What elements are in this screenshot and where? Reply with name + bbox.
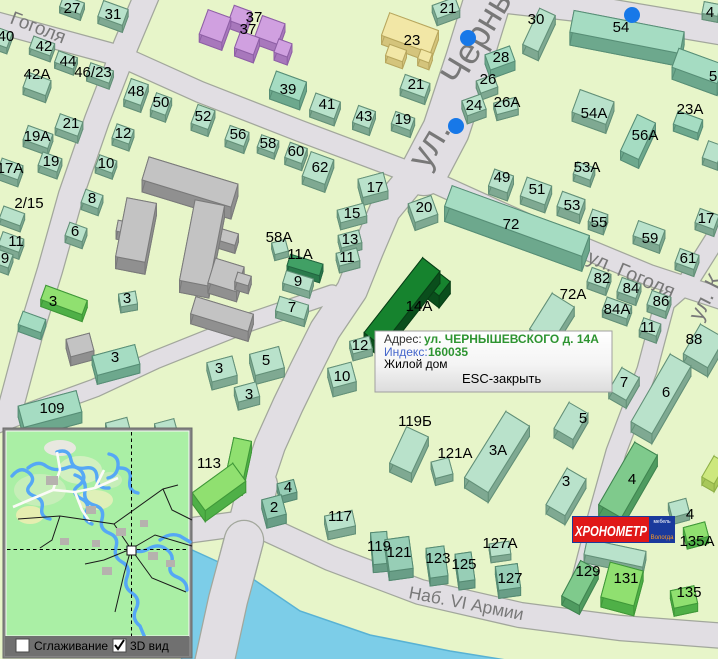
svg-text:50: 50: [153, 94, 170, 111]
svg-text:55: 55: [591, 214, 608, 231]
svg-text:4: 4: [706, 4, 714, 21]
svg-text:3: 3: [111, 349, 119, 366]
svg-text:43: 43: [356, 108, 373, 125]
svg-text:мебель: мебель: [653, 519, 671, 525]
svg-text:53A: 53A: [574, 159, 601, 176]
svg-text:11: 11: [640, 319, 656, 336]
svg-text:131: 131: [613, 570, 638, 587]
svg-text:15: 15: [344, 205, 361, 222]
svg-text:49: 49: [494, 169, 511, 186]
svg-text:5: 5: [262, 352, 270, 369]
svg-text:84: 84: [623, 280, 640, 297]
svg-text:19: 19: [43, 153, 60, 170]
svg-text:40: 40: [0, 28, 14, 45]
svg-text:5: 5: [709, 68, 717, 85]
svg-text:Вологда: Вологда: [651, 535, 675, 541]
svg-text:125: 125: [451, 556, 476, 573]
svg-text:14A: 14A: [406, 298, 433, 315]
svg-text:30: 30: [528, 11, 545, 28]
svg-text:5: 5: [579, 410, 587, 427]
svg-text:12: 12: [115, 125, 132, 142]
svg-text:3: 3: [49, 293, 57, 310]
svg-text:113: 113: [197, 455, 221, 472]
svg-text:27: 27: [64, 0, 81, 17]
svg-text:86: 86: [653, 293, 670, 310]
svg-text:Жилой дом: Жилой дом: [384, 357, 448, 371]
svg-text:8: 8: [88, 190, 96, 207]
svg-text:21: 21: [440, 0, 457, 17]
svg-text:37: 37: [240, 21, 257, 38]
svg-text:88: 88: [686, 331, 703, 348]
svg-text:24: 24: [466, 97, 483, 114]
svg-text:28: 28: [493, 49, 510, 66]
svg-text:19A: 19A: [24, 128, 51, 145]
svg-text:21: 21: [63, 115, 80, 132]
svg-text:19: 19: [395, 111, 412, 128]
svg-text:ESC-закрыть: ESC-закрыть: [462, 371, 541, 386]
svg-text:82: 82: [594, 270, 611, 287]
svg-text:61: 61: [680, 250, 697, 267]
svg-text:4: 4: [628, 471, 636, 488]
svg-text:56: 56: [230, 126, 247, 143]
svg-text:ул. ЧЕРНЫШЕВСКОГО д. 14А: ул. ЧЕРНЫШЕВСКОГО д. 14А: [424, 332, 599, 346]
svg-text:52: 52: [195, 108, 212, 125]
svg-text:3: 3: [562, 473, 570, 490]
svg-text:ХРОНОМЕТР: ХРОНОМЕТР: [574, 523, 647, 540]
svg-text:62: 62: [312, 159, 329, 176]
svg-text:Адрес:: Адрес:: [384, 332, 422, 346]
svg-text:51: 51: [529, 181, 546, 198]
svg-text:13: 13: [342, 231, 359, 248]
svg-text:9: 9: [294, 273, 302, 290]
svg-text:121: 121: [386, 544, 411, 561]
svg-text:31: 31: [105, 6, 122, 23]
svg-text:41: 41: [319, 96, 336, 113]
svg-text:60: 60: [288, 143, 305, 160]
svg-text:10: 10: [334, 368, 351, 385]
svg-text:54A: 54A: [581, 105, 608, 122]
svg-text:42: 42: [36, 38, 53, 55]
svg-text:11: 11: [8, 233, 24, 250]
svg-text:39: 39: [280, 81, 297, 98]
svg-text:26A: 26A: [494, 94, 521, 111]
svg-text:53: 53: [564, 197, 581, 214]
svg-text:7: 7: [288, 299, 296, 316]
svg-text:3: 3: [245, 386, 253, 403]
svg-text:6: 6: [662, 384, 670, 401]
svg-text:127: 127: [497, 570, 522, 587]
svg-text:4: 4: [284, 479, 292, 496]
svg-text:11A: 11A: [287, 246, 313, 263]
svg-text:127A: 127A: [482, 535, 517, 552]
svg-text:121A: 121A: [437, 445, 472, 462]
svg-text:129: 129: [575, 563, 600, 580]
svg-text:4: 4: [686, 506, 694, 523]
svg-text:10: 10: [98, 155, 115, 172]
svg-text:109: 109: [39, 400, 64, 417]
svg-text:26: 26: [480, 71, 497, 88]
svg-text:9: 9: [1, 250, 9, 267]
svg-text:58: 58: [260, 135, 277, 152]
svg-text:Сглаживание: Сглаживание: [34, 639, 108, 653]
svg-text:17: 17: [367, 179, 384, 196]
svg-text:42A: 42A: [24, 66, 51, 83]
svg-text:3: 3: [123, 290, 131, 307]
svg-text:17A: 17A: [0, 160, 23, 177]
svg-text:12: 12: [352, 337, 369, 354]
svg-text:135A: 135A: [679, 533, 714, 550]
svg-text:72: 72: [503, 216, 520, 233]
svg-text:59: 59: [642, 230, 659, 247]
svg-text:72A: 72A: [560, 286, 587, 303]
svg-text:11: 11: [339, 249, 355, 266]
svg-text:117: 117: [328, 508, 352, 525]
svg-text:2/15: 2/15: [14, 195, 43, 212]
svg-text:58A: 58A: [266, 229, 293, 246]
svg-text:3A: 3A: [489, 442, 507, 459]
svg-text:20: 20: [416, 199, 433, 216]
svg-text:7: 7: [620, 374, 628, 391]
svg-text:3D вид: 3D вид: [130, 639, 169, 653]
svg-text:23A: 23A: [677, 101, 704, 118]
svg-text:54: 54: [613, 19, 630, 36]
svg-text:21: 21: [408, 76, 425, 93]
svg-text:119Б: 119Б: [398, 413, 432, 430]
svg-text:84A: 84A: [604, 301, 631, 318]
svg-text:2: 2: [270, 499, 278, 516]
svg-text:46/23: 46/23: [74, 64, 112, 81]
svg-text:56A: 56A: [632, 127, 659, 144]
svg-text:123: 123: [425, 550, 450, 567]
svg-text:48: 48: [128, 83, 145, 100]
svg-text:6: 6: [71, 223, 79, 240]
svg-text:3: 3: [215, 360, 223, 377]
svg-text:17: 17: [698, 210, 715, 227]
svg-text:23: 23: [404, 32, 421, 49]
svg-text:135: 135: [676, 584, 701, 601]
